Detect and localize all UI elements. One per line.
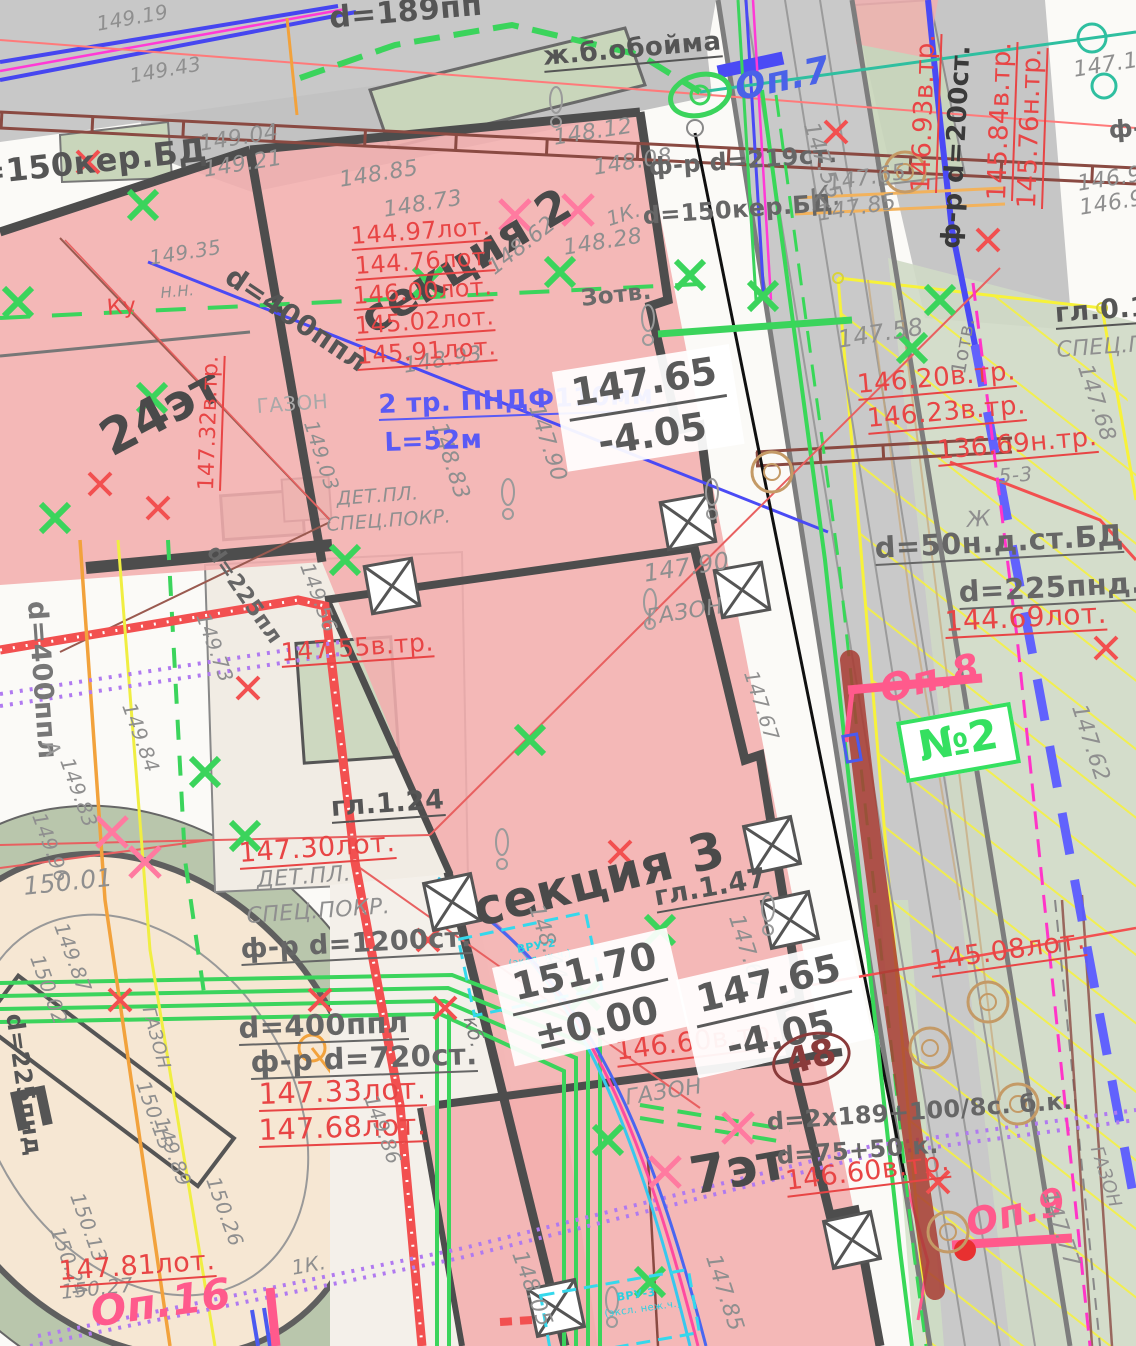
- map-label: 149.56: [297, 560, 341, 635]
- map-label: 147.58: [836, 314, 925, 351]
- map-label: П: [4, 1079, 60, 1141]
- map-label: 149.73: [193, 610, 237, 685]
- map-label: 149.03: [301, 418, 342, 493]
- map-label: 150.01: [22, 865, 114, 899]
- plot-number-2-label: №2: [896, 702, 1021, 783]
- map-label: гл.1.24: [330, 786, 445, 824]
- map-label: 147.18: [1072, 48, 1136, 82]
- map-label: 148.05: [507, 1248, 555, 1330]
- map-label: 147.90: [642, 548, 731, 585]
- map-label: 5-3: [998, 464, 1033, 486]
- map-label: ДЕТ.ПЛ.: [336, 484, 419, 509]
- map-label: ДЕТ.ПЛ.: [256, 863, 352, 892]
- map-label: СПЕЦ.ПОКР.: [246, 896, 391, 928]
- map-label: d=150кер.БД: [0, 134, 208, 192]
- map-label: 146.23в.тр.: [866, 392, 1027, 435]
- map-label: ф-р: [1108, 114, 1136, 142]
- map-label: кб.: [461, 1014, 489, 1050]
- map-label: 149.84: [119, 700, 163, 775]
- map-label: 147.85: [701, 1252, 746, 1334]
- map-label: 150.26: [203, 1174, 247, 1249]
- support-8-label: Оп.8: [876, 648, 983, 709]
- map-label: 145.08лот.: [928, 926, 1087, 977]
- map-label: Н.Н.: [160, 283, 195, 301]
- map-label: 144.69лот.: [944, 600, 1108, 639]
- map-label: ф-р d=200ст.: [938, 44, 975, 249]
- map-label: ГАЗОН: [256, 391, 329, 416]
- map-label: гл.0.17: [1054, 292, 1136, 330]
- map-label: ВРУ-3: [616, 1287, 656, 1303]
- map-label: 147.68лот.: [258, 1110, 427, 1148]
- support-7-label: Оп.7: [732, 52, 833, 107]
- map-label: ГАЗОН: [1087, 1144, 1124, 1210]
- map-label: СПЕЦ.ПОКР.: [1056, 330, 1136, 362]
- map-label: 146.93в.тр.: [908, 33, 943, 193]
- map-label: ж.б.обойма: [542, 28, 723, 72]
- map-label: d=189пп: [328, 0, 484, 34]
- map-label: d=150кер.БД: [642, 191, 834, 228]
- map-label: 149.83: [57, 755, 101, 830]
- map-label: Зотв.: [580, 281, 653, 311]
- map-label: 149.35: [148, 237, 223, 268]
- map-label: 147.32в.тр.: [196, 355, 226, 491]
- map-label: 1К.: [290, 1252, 327, 1278]
- map-label: L=52м: [384, 427, 483, 456]
- map-label: ГАЗОН: [139, 1005, 173, 1071]
- map-label: 145.76н.тр.: [1014, 48, 1049, 209]
- map-label: d=2х189+100/8с. б.к.: [766, 1089, 1073, 1134]
- map-label: 147.33лот.: [258, 1074, 427, 1112]
- lawn-label: ГАЗОН: [645, 596, 725, 630]
- map-label: 147.55в.тр.: [280, 629, 435, 668]
- map-label: 147.62: [1067, 702, 1112, 784]
- label-layer: 149.19149.43d=150кер.БД149.04149.21149.3…: [0, 0, 1136, 1346]
- map-label: 148.28: [562, 226, 644, 260]
- map-label: 148.12: [552, 116, 634, 150]
- map-label: 147.77: [1037, 1188, 1082, 1270]
- map-label: ГАЗОН: [624, 1076, 704, 1110]
- map-label: d=50н.д.ст.БД: [874, 521, 1124, 566]
- map-label: 136.69н.тр.: [936, 424, 1098, 467]
- map-label: (эксл. неж.ч.): [604, 1299, 682, 1320]
- map-label: 149.19: [95, 1, 170, 33]
- map-label: d=400ппл: [220, 262, 372, 377]
- map-label: ф-р d=1200ст.: [240, 924, 472, 966]
- map-label: 147.67: [741, 668, 782, 743]
- site-plan: 149.19149.43d=150кер.БД149.04149.21149.3…: [0, 0, 1136, 1346]
- map-label: 149.43: [128, 53, 203, 85]
- map-label: d=400ппл: [23, 600, 61, 760]
- map-label: Ку: [106, 295, 137, 319]
- map-label: СПЕЦ.ПОКР.: [326, 507, 452, 535]
- map-label: 148.85: [338, 158, 420, 192]
- elevation-box: 147.65-4.05: [552, 344, 744, 472]
